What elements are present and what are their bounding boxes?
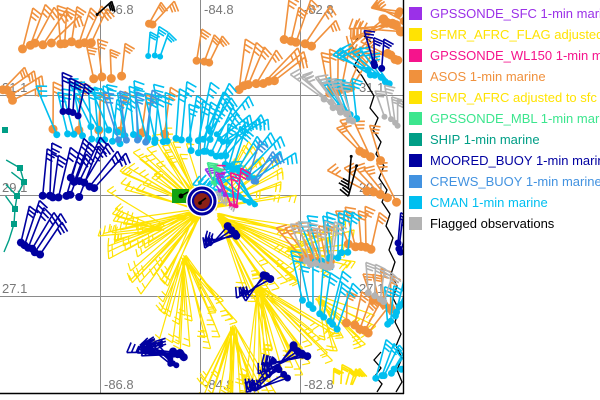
station-dot xyxy=(303,352,311,360)
station-dot xyxy=(321,96,328,103)
station-dot xyxy=(70,131,77,138)
legend-label: SHIP 1-min marine xyxy=(430,132,540,147)
station-dot xyxy=(157,54,163,60)
legend-item-sfc: GPSSONDE_SFC 1-min marine xyxy=(406,3,600,24)
station-dot xyxy=(178,136,185,143)
station-dot xyxy=(387,318,394,325)
legend-label: CREWS_BUOY 1-min marine xyxy=(430,174,600,189)
wind-barb-cluster-black xyxy=(339,155,358,196)
station-dot xyxy=(342,318,351,327)
station-dot xyxy=(365,289,372,296)
legend-item-moored: MOORED_BUOY 1-min marine xyxy=(406,150,600,171)
legend-swatch-cman xyxy=(409,196,422,209)
legend-item-sfmr_flag: SFMR_AFRC_FLAG adjusted to xyxy=(406,24,600,45)
lat-label-left: 27.1 xyxy=(2,281,27,296)
station-dot xyxy=(247,201,252,206)
legend-swatch-ship xyxy=(409,133,422,146)
legend-item-sfmr: SFMR_AFRC adjusted to sfc xyxy=(406,87,600,108)
station-dot xyxy=(123,137,130,144)
station-dot xyxy=(90,184,98,192)
ship-dot xyxy=(11,221,17,227)
station-dot xyxy=(367,245,376,254)
station-dot xyxy=(399,301,406,308)
station-dot xyxy=(350,155,353,158)
surface-obs-plot: -86.8-86.8-84.8-84.8-82.8-82.831.131.129… xyxy=(0,0,600,400)
station-dot xyxy=(394,10,402,18)
station-dot xyxy=(145,53,151,59)
lon-label-bottom: -86.8 xyxy=(104,377,134,392)
wind-barb-cluster-asos xyxy=(145,1,179,28)
wind-barb-cluster-asos xyxy=(235,39,308,94)
legend-label: SFMR_AFRC adjusted to sfc xyxy=(430,90,597,105)
station-dot xyxy=(107,74,116,83)
station-dot xyxy=(134,137,141,144)
station-dot xyxy=(96,13,99,16)
station-dot xyxy=(312,260,319,267)
station-dot xyxy=(152,53,158,59)
station-dot xyxy=(207,129,213,135)
station-dot xyxy=(8,96,17,105)
lon-label-bottom: -82.8 xyxy=(304,377,334,392)
station-dot xyxy=(38,40,47,49)
legend-label: MOORED_BUOY 1-min marine xyxy=(430,153,600,168)
legend-swatch-wl150 xyxy=(409,49,422,62)
station-dot xyxy=(355,164,358,167)
station-dot xyxy=(164,138,171,145)
station-dot xyxy=(53,131,60,138)
legend-label: GPSSONDE_SFC 1-min marine xyxy=(430,6,600,21)
station-dot xyxy=(307,42,316,51)
station-dot xyxy=(89,74,98,83)
station-dot xyxy=(180,353,188,361)
station-dot xyxy=(36,251,44,259)
station-dot xyxy=(75,193,83,201)
station-dot xyxy=(30,39,39,48)
station-dot xyxy=(253,179,259,185)
legend-label: SFMR_AFRC_FLAG adjusted to xyxy=(430,27,600,42)
station-dot xyxy=(225,139,231,145)
station-dot xyxy=(266,275,274,283)
station-dot xyxy=(97,72,106,81)
station-dot xyxy=(232,232,240,240)
legend-swatch-flag xyxy=(409,217,422,230)
legend-item-asos: ASOS 1-min marine xyxy=(406,66,600,87)
legend-label: GPSSONDE_MBL 1-min marine xyxy=(430,111,600,126)
station-dot xyxy=(366,152,375,161)
station-dot xyxy=(349,118,356,125)
legend: GPSSONDE_SFC 1-min marineSFMR_AFRC_FLAG … xyxy=(406,3,600,234)
station-dot xyxy=(372,375,379,382)
legend-label: CMAN 1-min marine xyxy=(430,195,548,210)
legend-swatch-mbl xyxy=(409,112,422,125)
station-dot xyxy=(64,130,71,137)
station-dot xyxy=(328,263,335,270)
station-dot xyxy=(188,147,195,154)
station-dot xyxy=(320,314,327,321)
ship-dot xyxy=(2,127,8,133)
station-dot xyxy=(378,65,385,72)
station-dot xyxy=(395,240,402,247)
station-dot xyxy=(142,139,149,146)
legend-item-ship: SHIP 1-min marine xyxy=(406,129,600,150)
station-dot xyxy=(337,109,344,116)
legend-swatch-sfmr_flag xyxy=(409,28,422,41)
station-dot xyxy=(244,80,253,89)
station-dot xyxy=(173,362,179,368)
legend-swatch-crews xyxy=(409,175,422,188)
station-dot xyxy=(213,182,217,186)
legend-item-flag: Flagged observations xyxy=(406,213,600,234)
station-dot xyxy=(371,62,378,69)
station-dot xyxy=(88,136,95,143)
station-dot xyxy=(218,189,222,193)
station-dot xyxy=(393,56,402,65)
station-dot xyxy=(392,198,401,207)
legend-label: GPSSONDE_WL150 1-min mar xyxy=(430,48,600,63)
station-dot xyxy=(55,193,63,201)
wind-barb-cluster-asos xyxy=(327,163,401,207)
station-dot xyxy=(396,27,406,37)
station-dot xyxy=(75,112,82,119)
station-dot xyxy=(205,59,213,67)
station-dot xyxy=(252,202,257,207)
legend-item-crews: CREWS_BUOY 1-min marine xyxy=(406,171,600,192)
station-dot xyxy=(344,249,351,256)
station-dot xyxy=(364,329,373,338)
station-dot xyxy=(391,366,398,373)
station-dot xyxy=(39,192,47,200)
station-dot xyxy=(229,203,233,207)
legend-item-mbl: GPSSONDE_MBL 1-min marine xyxy=(406,108,600,129)
station-dot xyxy=(383,193,392,202)
wind-barb-cluster-asos xyxy=(193,29,230,67)
legend-item-wl150: GPSSONDE_WL150 1-min mar xyxy=(406,45,600,66)
station-dot xyxy=(270,76,279,85)
legend-label: Flagged observations xyxy=(430,216,554,231)
wind-barb-cluster-sfmr xyxy=(333,365,367,385)
wind-barb-cluster-asos xyxy=(337,118,385,165)
station-dot xyxy=(334,326,341,333)
legend-swatch-moored xyxy=(409,154,422,167)
station-dot xyxy=(395,123,401,129)
station-dot xyxy=(115,136,122,143)
station-dot xyxy=(310,305,317,312)
station-dot xyxy=(117,72,126,81)
station-dot xyxy=(149,21,157,29)
station-dot xyxy=(382,114,388,120)
legend-label: ASOS 1-min marine xyxy=(430,69,546,84)
station-dot xyxy=(79,132,86,139)
map-frame: -86.8-86.8-84.8-84.8-82.8-82.831.131.129… xyxy=(0,0,439,400)
station-dot xyxy=(343,111,350,118)
station-dot xyxy=(380,298,387,305)
station-dot xyxy=(18,44,27,53)
wind-barb-cluster-cman xyxy=(372,339,438,382)
station-dot xyxy=(87,38,96,47)
station-dot xyxy=(381,372,388,379)
station-dot xyxy=(223,193,227,197)
station-dot xyxy=(371,72,378,79)
legend-item-cman: CMAN 1-min marine xyxy=(406,192,600,213)
wind-barb-cluster-moored xyxy=(17,201,68,259)
station-dot xyxy=(292,38,301,47)
station-dot xyxy=(47,39,56,48)
station-dot xyxy=(193,57,201,65)
sfmr-fan xyxy=(152,255,237,349)
lon-label-top: -84.8 xyxy=(204,2,234,17)
wind-barb-cluster-flag xyxy=(375,85,407,129)
station-dot xyxy=(338,249,345,256)
station-dot xyxy=(105,127,112,134)
station-dot xyxy=(235,204,239,208)
station-dot xyxy=(95,126,102,133)
station-dot xyxy=(109,138,116,145)
station-dot xyxy=(87,123,94,130)
station-dot xyxy=(152,136,159,143)
station-dot xyxy=(66,191,74,199)
legend-swatch-asos xyxy=(409,70,422,83)
station-dot xyxy=(284,375,291,382)
legend-swatch-sfmr xyxy=(409,91,422,104)
station-dot xyxy=(299,297,306,304)
wind-barb-cluster-cman xyxy=(145,27,176,60)
legend-swatch-sfc xyxy=(409,7,422,20)
